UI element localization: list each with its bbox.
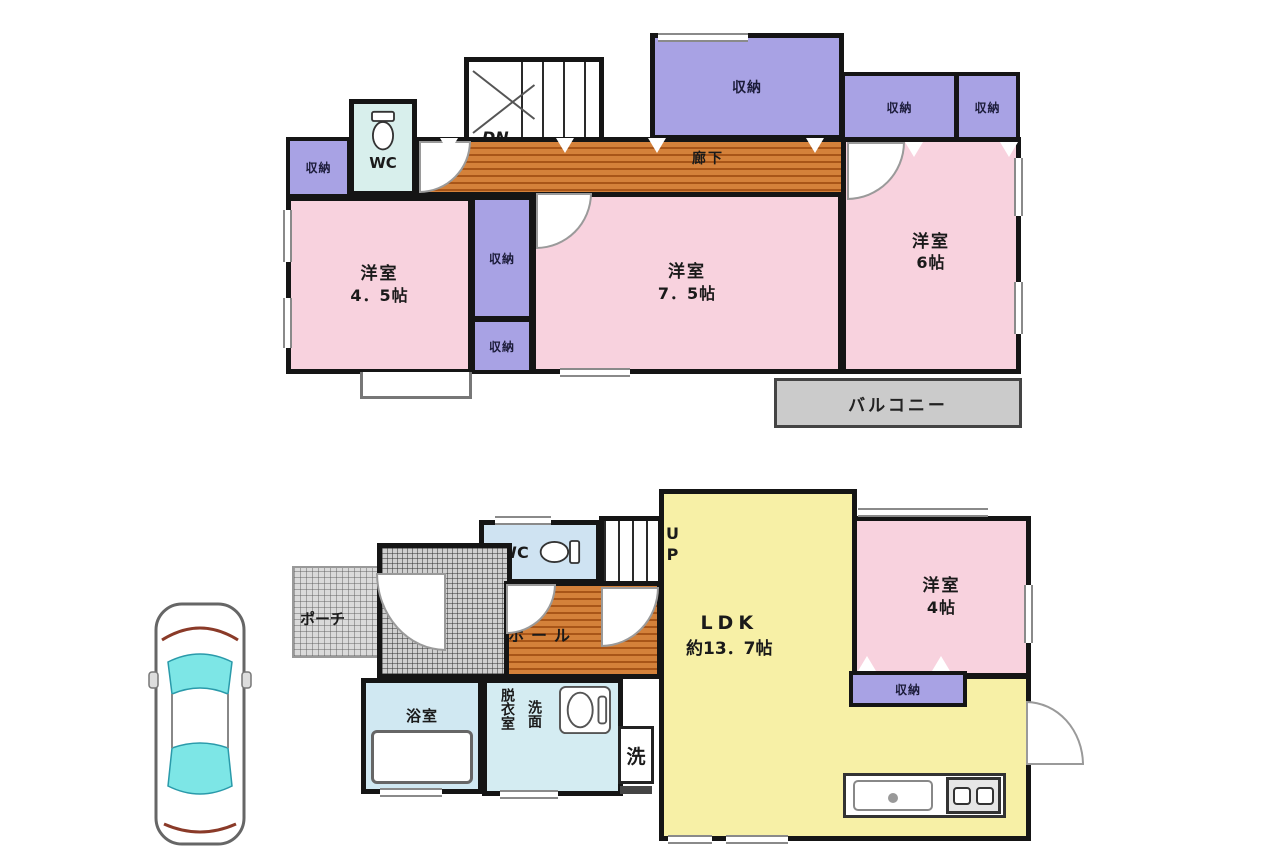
room-size: 4帖 bbox=[927, 598, 956, 618]
bathtub bbox=[371, 730, 473, 784]
closet-label: 収納 bbox=[489, 338, 515, 355]
closet-top-right-2: 収納 bbox=[955, 72, 1020, 142]
porch-label: ポーチ bbox=[300, 608, 345, 629]
hallway-2f bbox=[414, 137, 846, 197]
bay-window-2f bbox=[360, 372, 472, 399]
room-size: 6帖 bbox=[916, 253, 945, 273]
closet-mid-2: 収納 bbox=[471, 318, 533, 374]
washing-machine-base bbox=[620, 786, 652, 794]
kitchen-stove bbox=[946, 777, 1001, 814]
hallway-label: 廊下 bbox=[692, 148, 724, 168]
closet-1f: 収納 bbox=[849, 671, 967, 707]
window bbox=[1014, 282, 1023, 334]
room-name: 洋室 bbox=[361, 264, 399, 285]
door-notch bbox=[1000, 142, 1018, 157]
door-notch bbox=[858, 656, 876, 671]
exterior-door-arc bbox=[1026, 701, 1084, 765]
closet-mid-1: 収納 bbox=[471, 196, 533, 320]
room-size: 4．5帖 bbox=[350, 286, 408, 306]
stair-treads bbox=[521, 62, 599, 140]
room-name: 洋室 bbox=[923, 576, 961, 597]
toilet-icon bbox=[367, 110, 399, 154]
staircase-1f bbox=[599, 516, 663, 586]
wc-label: WC bbox=[369, 154, 397, 172]
closet-top-right-1: 収納 bbox=[841, 72, 958, 142]
closet-label: 収納 bbox=[974, 99, 1000, 116]
balcony-label: バルコニー bbox=[848, 391, 948, 416]
window bbox=[380, 788, 442, 797]
closet-label: 収納 bbox=[489, 250, 515, 267]
window bbox=[500, 790, 558, 799]
window bbox=[495, 516, 551, 525]
ldk-label: LDK 約13．7帖 bbox=[686, 612, 773, 659]
closet-left-2f: 収納 bbox=[286, 137, 351, 198]
washbasin-label: 洗面 bbox=[524, 700, 544, 728]
window bbox=[283, 210, 292, 262]
room-name: 洋室 bbox=[912, 232, 950, 253]
bedroom-4: 洋室 4帖 bbox=[852, 516, 1031, 678]
door-notch bbox=[932, 656, 950, 671]
bedroom-4-5: 洋室 4．5帖 bbox=[286, 196, 473, 374]
car-icon bbox=[148, 598, 252, 850]
door-notch bbox=[556, 138, 574, 153]
window bbox=[1024, 585, 1033, 643]
balcony: バルコニー bbox=[774, 378, 1022, 428]
bathroom-label: 浴室 bbox=[406, 705, 438, 726]
washbasin-icon bbox=[558, 685, 612, 735]
room-name: LDK bbox=[686, 612, 773, 634]
room-size: 約13．7帖 bbox=[686, 634, 773, 659]
laundry-label: 洗 bbox=[626, 742, 645, 769]
door-notch bbox=[905, 142, 923, 157]
room-name: 洋室 bbox=[668, 262, 706, 283]
window bbox=[560, 368, 630, 377]
room-size: 7．5帖 bbox=[658, 284, 716, 304]
closet-label: 収納 bbox=[305, 159, 331, 176]
stair-treads bbox=[604, 521, 658, 581]
door-notch bbox=[648, 138, 666, 153]
floor2-plan: DN 収納 収納 収納 WC 収納 廊下 洋室 4．5帖 収納 収納 洋室 7．… bbox=[0, 0, 1280, 460]
burner-icon bbox=[953, 787, 971, 805]
closet-label: 収納 bbox=[895, 681, 921, 698]
window bbox=[658, 33, 748, 42]
closet-label: 収納 bbox=[732, 77, 762, 97]
stairs-up-label: UP bbox=[664, 524, 680, 566]
dressing-label: 脱衣室 bbox=[497, 688, 517, 730]
closet-label: 収納 bbox=[886, 99, 912, 116]
window bbox=[858, 508, 988, 517]
window bbox=[726, 835, 788, 844]
door-notch bbox=[806, 138, 824, 153]
door-notch bbox=[440, 138, 458, 153]
window bbox=[283, 298, 292, 348]
window bbox=[1014, 158, 1023, 216]
ldk bbox=[659, 489, 857, 841]
washing-machine: 洗 bbox=[618, 726, 654, 784]
burner-icon bbox=[976, 787, 994, 805]
window bbox=[668, 835, 712, 844]
closet-top-center: 収納 bbox=[650, 33, 844, 140]
wc-2f: WC bbox=[349, 99, 417, 196]
toilet-icon bbox=[537, 535, 581, 569]
faucet-icon bbox=[888, 793, 898, 803]
